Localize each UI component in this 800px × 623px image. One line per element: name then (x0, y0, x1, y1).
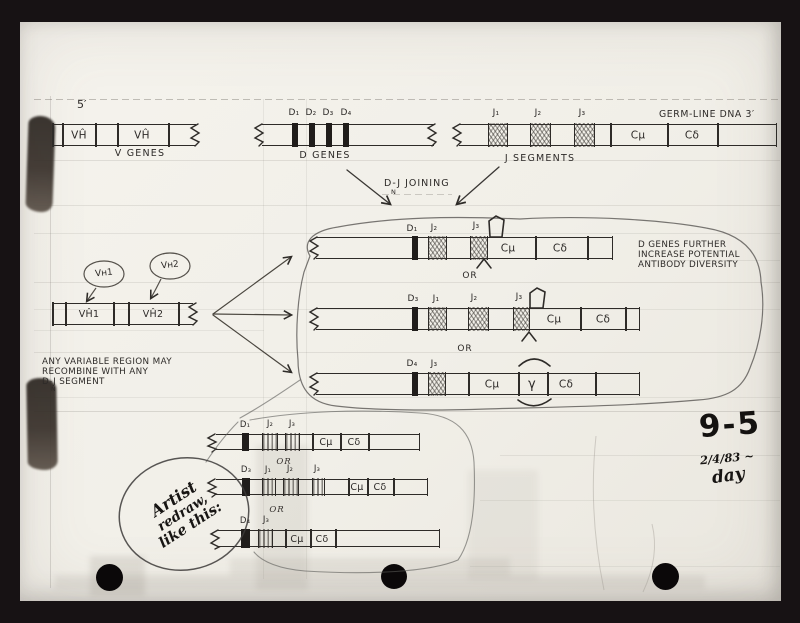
j3-segment-block (470, 236, 488, 260)
d1-label: D₁ (407, 224, 418, 234)
d1-label: D₁ (240, 420, 250, 430)
j2-label: J₂ (431, 223, 438, 233)
ruled-line (34, 160, 780, 161)
diversity-note-line1: D GENES FURTHER (638, 240, 726, 250)
segment-divider (717, 123, 719, 147)
segment-divider (587, 236, 589, 260)
segment-divider (612, 236, 614, 260)
punch-hole (652, 563, 679, 590)
segment-divider (625, 307, 627, 331)
ruled-line (34, 397, 780, 398)
c-mu-label: Cμ (501, 242, 516, 254)
segment-divider (348, 478, 350, 496)
five-prime-label: 5′ (77, 99, 87, 110)
rearranged-row3-bar: Cμ γ Cδ (316, 373, 640, 395)
c-delta-label: Cδ (559, 378, 573, 390)
j1-segment-block (428, 307, 447, 331)
photocopy-smear (468, 470, 538, 580)
d4-gene-block (343, 123, 349, 147)
j3-label: J₃ (263, 515, 269, 525)
segment-divider (113, 302, 115, 326)
redraw-row1-bar: Cμ Cδ (216, 434, 420, 450)
c-mu-label: Cμ (319, 437, 332, 448)
ruled-line (34, 411, 780, 412)
j3-segment-block (312, 478, 325, 496)
d1-gene-block (412, 236, 418, 260)
scanned-figure: 5′ VĤ VĤ V GENES D₁ D₂ D₃ D₄ D GENES Cμ … (0, 0, 800, 623)
segment-divider (776, 123, 778, 147)
j2-segment-block (283, 478, 299, 496)
d3-label: D₃ (408, 294, 419, 304)
d3-label: D₃ (241, 465, 251, 475)
j2-segment-block (530, 123, 551, 147)
j3-label: J₃ (289, 419, 295, 429)
segment-divider (610, 123, 612, 147)
c-mu-label: Cμ (350, 482, 363, 493)
j2-segment-block (262, 433, 278, 451)
or-label: OR (462, 271, 477, 281)
ruled-line (34, 352, 780, 353)
c-mu-label: Cμ (547, 313, 562, 325)
v-genes-bar: VĤ VĤ (52, 124, 196, 146)
figure-number: 9-5 (698, 408, 762, 443)
segment-divider (419, 433, 421, 451)
d3-gene-block (242, 478, 250, 496)
vh-segment-label: VĤ (134, 129, 150, 141)
d-genes-bar (262, 124, 434, 146)
segment-divider (439, 529, 441, 548)
c-mu-label: Cμ (485, 378, 500, 390)
j3-segment-block (513, 307, 530, 331)
j2-segment-block (468, 307, 489, 331)
segment-divider (427, 478, 429, 496)
j2-label: J₂ (535, 108, 542, 118)
redraw-row3-bar: Cμ Cδ (218, 530, 440, 547)
segment-divider (667, 123, 669, 147)
segment-divider (335, 529, 337, 548)
segment-divider (312, 433, 314, 451)
segment-divider (518, 372, 520, 396)
vh2-segment-label: VĤ2 (143, 309, 164, 320)
segment-divider (639, 372, 641, 396)
j2-label: J₂ (287, 464, 293, 474)
j2-label: J₂ (267, 419, 273, 429)
j2-label: J₂ (471, 293, 478, 303)
j-segments-caption: J SEGMENTS (505, 153, 575, 164)
j1-label: J₁ (493, 108, 500, 118)
c-mu-label: Cμ (290, 533, 303, 544)
punch-hole (96, 564, 123, 591)
segment-divider (368, 433, 370, 451)
variable-region-bar: VĤ1 VĤ2 (52, 303, 193, 325)
j3-label: J₃ (314, 464, 320, 474)
segment-divider (95, 123, 97, 147)
segment-divider (285, 529, 287, 548)
j2-segment-block (428, 236, 447, 260)
vh1-segment-label: VĤ1 (79, 309, 100, 320)
or-label: OR (457, 344, 472, 354)
segment-divider (468, 372, 470, 396)
segment-divider (178, 302, 180, 326)
v-genes-caption: V GENES (115, 148, 165, 159)
j3-segment-block (574, 123, 595, 147)
d4-label: D₄ (407, 359, 418, 369)
j3-label: J₃ (579, 108, 586, 118)
punch-hole (381, 564, 407, 589)
segment-divider (310, 529, 312, 548)
segment-divider (393, 478, 395, 496)
c-delta-label: Cδ (553, 242, 567, 254)
d4-gene-block (412, 372, 418, 396)
segment-divider (340, 433, 342, 451)
d-genes-caption: D GENES (299, 150, 350, 161)
vh-segment-label: VĤ (71, 129, 87, 141)
segment-divider (65, 302, 67, 326)
j3-segment-block (258, 529, 273, 548)
j1-segment-block (488, 123, 508, 147)
ruled-line (34, 330, 264, 331)
d4-label: D₄ (341, 108, 352, 118)
segment-divider (367, 478, 369, 496)
c-mu-label: Cμ (631, 129, 646, 141)
n-region-label: N (391, 189, 396, 196)
j3-segment-block (428, 372, 446, 396)
segment-divider (52, 123, 54, 147)
rearranged-row1-bar: Cμ Cδ (316, 237, 613, 259)
recombine-note-line1: ANY VARIABLE REGION MAY (42, 357, 172, 367)
d3-gene-block (326, 123, 332, 147)
ruled-line (34, 205, 780, 206)
redraw-row2-bar: Cμ Cδ (216, 479, 428, 495)
d4-label: D₄ (240, 516, 250, 526)
c-delta-label: Cδ (373, 482, 386, 493)
c-delta-label: Cδ (315, 533, 328, 544)
photocopy-smear (55, 575, 705, 589)
segment-divider (168, 123, 170, 147)
diversity-note-line2: INCREASE POTENTIAL (638, 250, 740, 260)
segment-divider (580, 307, 582, 331)
c-delta-label: Cδ (347, 437, 360, 448)
j3-label: J₃ (516, 292, 523, 302)
segment-divider (117, 123, 119, 147)
segment-divider (62, 123, 64, 147)
segment-divider (535, 236, 537, 260)
d1-gene-block (242, 433, 249, 451)
d3-label: D₃ (323, 108, 334, 118)
segment-divider (547, 372, 549, 396)
j1-label: J₁ (265, 465, 271, 475)
rearranged-row2-bar: Cμ Cδ (316, 308, 640, 330)
j3-label: J₃ (473, 221, 480, 231)
segment-divider (128, 302, 130, 326)
d2-gene-block (309, 123, 315, 147)
gamma-label: γ (528, 377, 536, 392)
d1-label: D₁ (289, 108, 300, 118)
j3-segment-block (285, 433, 300, 451)
vh2-bubble-label: Vʜ2 (161, 261, 180, 272)
j1-label: J₁ (433, 294, 440, 304)
segment-divider (595, 372, 597, 396)
signoff-annotation: day (711, 466, 746, 487)
j3-label: J₃ (431, 359, 438, 369)
d1-gene-block (292, 123, 298, 147)
segment-divider (639, 307, 641, 331)
segment-divider (52, 302, 54, 326)
d2-label: D₂ (306, 108, 317, 118)
j-segments-bar: Cμ Cδ (459, 124, 777, 146)
j1-segment-block (262, 478, 276, 496)
recombine-note-line2: RECOMBINE WITH ANY (42, 367, 148, 377)
germline-dna-label: GERM-LINE DNA 3′ (659, 110, 755, 119)
d4-gene-block (241, 529, 250, 548)
c-delta-label: Cδ (685, 129, 699, 141)
n-region-label: N (51, 387, 56, 393)
ruled-line (34, 282, 780, 283)
c-delta-label: Cδ (596, 313, 610, 325)
vh1-bubble-label: Vʜ1 (95, 269, 114, 280)
diversity-note-line3: ANTIBODY DIVERSITY (638, 260, 738, 270)
or-label: OR (269, 505, 284, 515)
ruled-line (34, 99, 780, 100)
d3-gene-block (412, 307, 418, 331)
